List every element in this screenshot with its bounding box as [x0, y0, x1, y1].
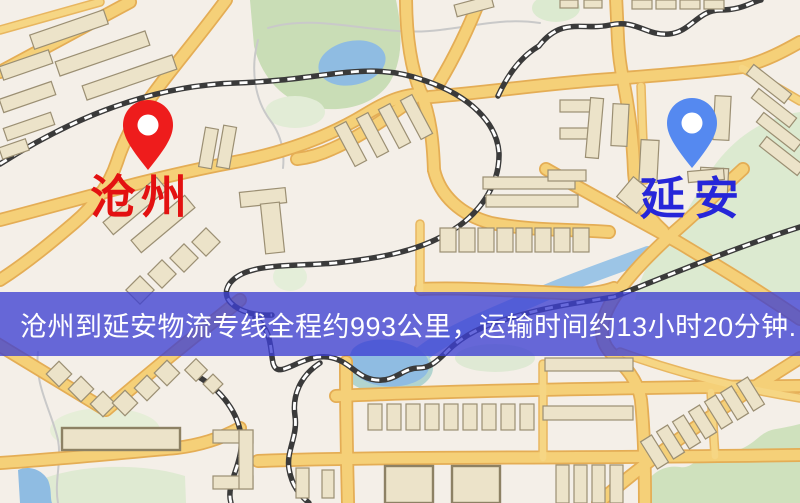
route-info-banner: 沧州到延安物流专线全程约993公里，运输时间约13小时20分钟. — [0, 292, 800, 356]
map-artwork — [0, 0, 800, 503]
route-info-text: 沧州到延安物流专线全程约993公里，运输时间约13小时20分钟. — [20, 305, 797, 344]
map-canvas: 沧州 延安 沧州到延安物流专线全程约993公里，运输时间约13小时20分钟. — [0, 0, 800, 503]
destination-label: 延安 — [640, 176, 748, 221]
origin-pin-icon[interactable] — [121, 99, 175, 171]
origin-label: 沧州 — [90, 174, 192, 220]
destination-pin-icon[interactable] — [665, 97, 719, 169]
